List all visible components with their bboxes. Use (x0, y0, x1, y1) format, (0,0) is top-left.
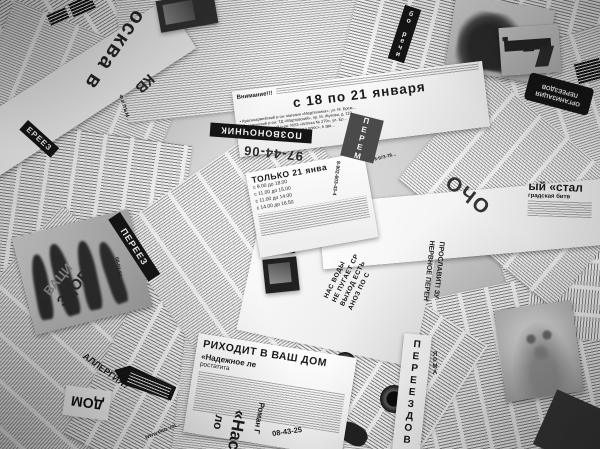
gun-silhouette (502, 28, 559, 72)
pereezdov-vertical-text: ПЕРЕЕЗДОВ (401, 339, 423, 448)
lo-letters: ло (211, 414, 227, 431)
dom-text: ДОМ (70, 393, 104, 413)
phone-small-top: 8-973-78… (374, 151, 397, 161)
photo-box (262, 256, 299, 293)
pere-dark-text1: ПЕРЕ (354, 115, 371, 152)
pozvonochnik-text: ПОЗВОНОЧНИК (220, 125, 302, 141)
stal-scrap: ый «стал градская битв (527, 179, 592, 218)
dom-scrap: ДОМ (62, 385, 112, 421)
stal-filler (527, 200, 592, 218)
pere-dark-text2: М (353, 150, 362, 160)
photo-box-top-inner (162, 0, 195, 25)
yarma-caption: ЯРМА (432, 352, 438, 376)
gun-photo (498, 24, 561, 76)
newspaper-collage: осква в КВ ФИЛЬМ Внимание!!! с 18 по 21 … (0, 0, 600, 449)
face-photo (494, 300, 584, 402)
photo-box-inner (268, 262, 292, 284)
